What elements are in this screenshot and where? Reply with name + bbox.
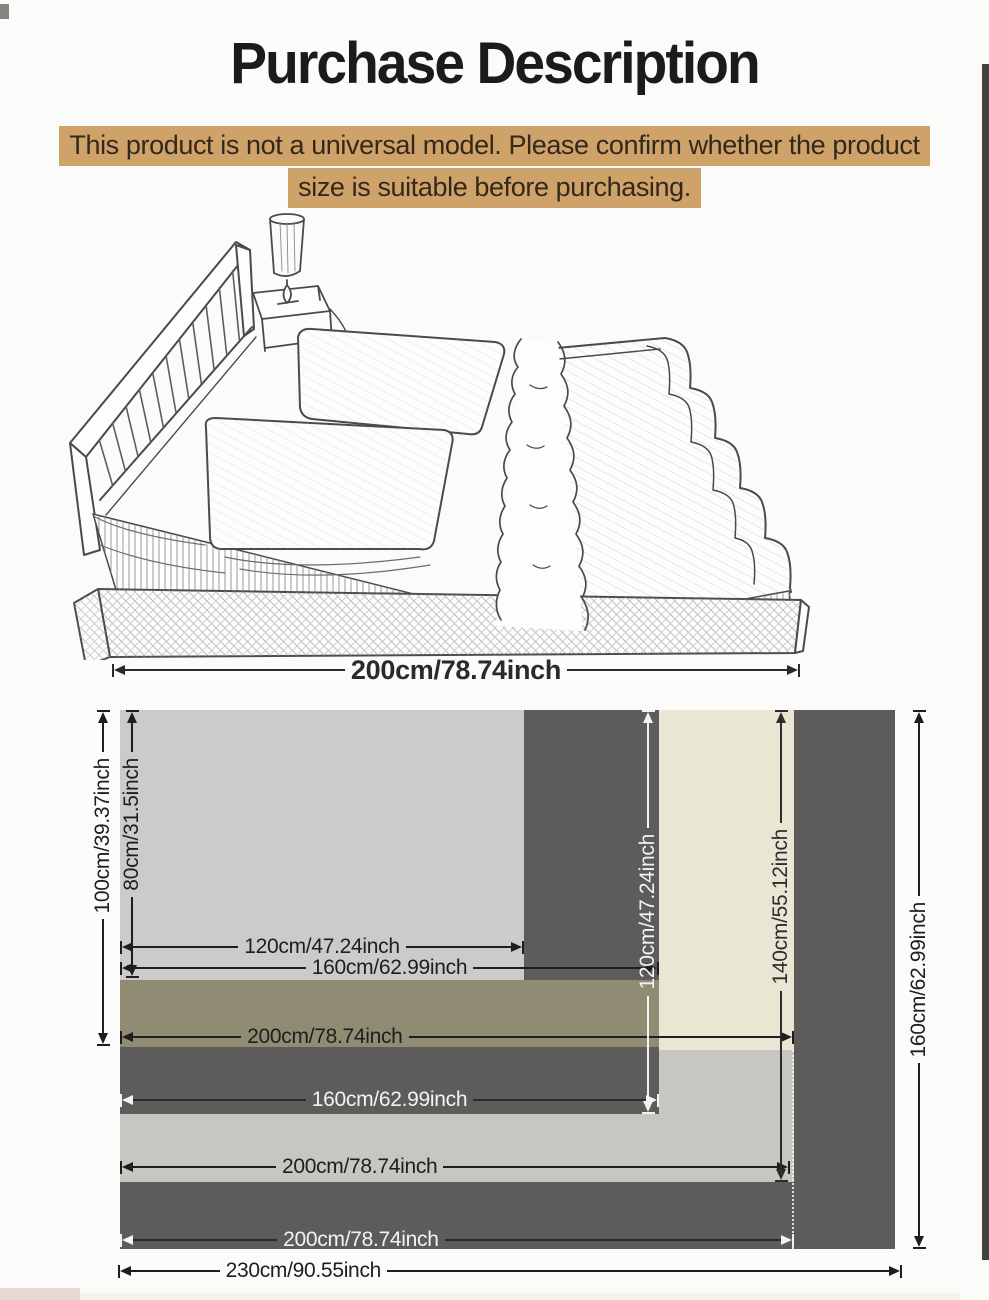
- photo-edge-right: [982, 64, 989, 1260]
- photo-smudge-bottom: [80, 1293, 960, 1300]
- dim-height-120: 120cm/47.24inch: [636, 710, 660, 1114]
- dim-height-140: 140cm/55.12inch: [769, 710, 793, 1182]
- bed-width-label: 200cm/78.74inch: [345, 655, 567, 686]
- dim-width-200-bottom: 200cm/78.74inch: [120, 1228, 794, 1252]
- dim-height-100: 100cm/39.37inch: [91, 710, 115, 1046]
- purchase-description-infographic: Purchase Description This product is not…: [0, 0, 989, 1300]
- page-title: Purchase Description: [25, 30, 965, 97]
- bed-sketch: [0, 205, 989, 660]
- dim-height-80: 80cm/31.5inch: [120, 710, 144, 978]
- dim-width-200-olive: 200cm/78.74inch: [120, 1025, 794, 1049]
- bed-width-dimension: 200cm/78.74inch: [112, 656, 800, 684]
- dim-width-200-light: 200cm/78.74inch: [120, 1155, 790, 1179]
- warning-banner: This product is not a universal model. P…: [0, 126, 989, 210]
- dim-width-230: 230cm/90.55inch: [118, 1259, 902, 1283]
- bed-base: [74, 589, 809, 660]
- dim-width-160-dark: 160cm/62.99inch: [120, 1088, 659, 1112]
- dim-width-160-top: 160cm/62.99inch: [120, 956, 659, 980]
- bedspread: [557, 338, 791, 633]
- warning-line-1: This product is not a universal model. P…: [59, 126, 929, 166]
- dim-height-160: 160cm/62.99inch: [907, 710, 931, 1249]
- warning-line-2: size is suitable before purchasing.: [288, 168, 701, 208]
- photo-corner-top-left: [0, 4, 9, 19]
- photo-smudge-bottom-left: [0, 1288, 80, 1300]
